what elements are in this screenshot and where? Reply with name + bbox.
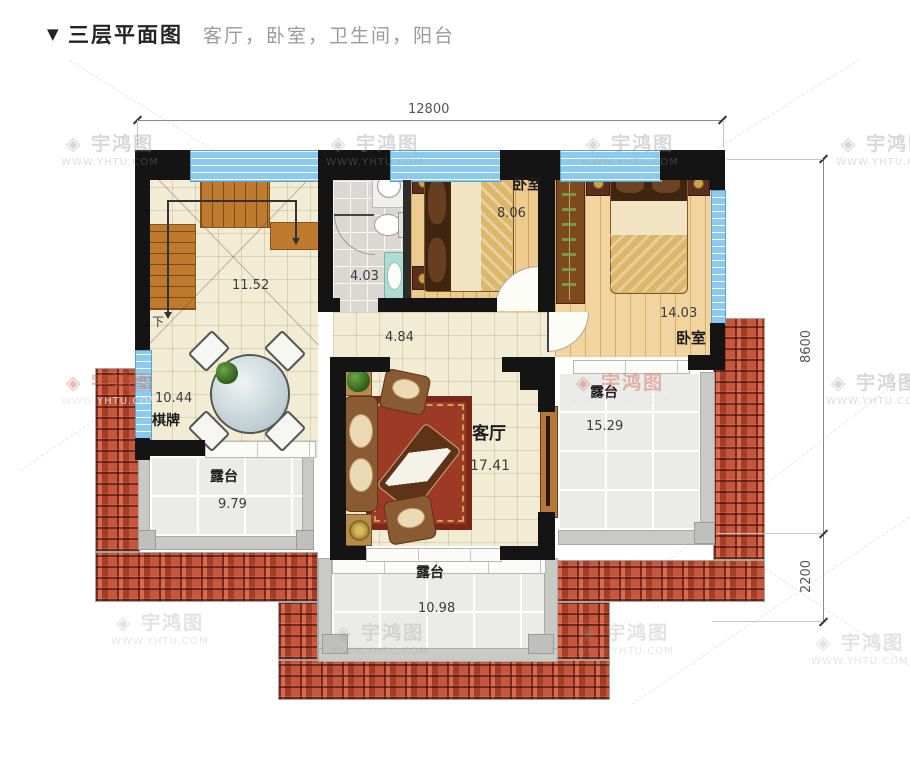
watermark-url: WWW.YHTU.COM [75,636,245,648]
terrace-right-area: 15.29 [586,420,623,433]
roof-bottom-left [95,552,318,602]
wall [710,323,725,357]
wall [330,546,366,560]
stair-walkline [167,200,169,312]
hallway-area: 4.84 [385,331,414,344]
window [560,150,662,182]
section-marker-icon: ▼ [47,25,59,43]
terrace-bottom-name: 露台 [416,566,444,580]
dimension-right-upper-value: 8600 [800,330,813,363]
plant-icon [216,362,238,384]
terrace-right-parapet [558,530,715,545]
living-terrace-door-sill [366,548,502,562]
terrace-right-floor [558,372,700,530]
terrace-post [322,634,348,654]
wall [318,150,390,180]
window [190,150,320,182]
wall [403,180,411,300]
wall [403,298,497,312]
window [390,150,502,182]
bed-pillow [428,238,446,282]
terrace-post [296,530,314,550]
bathroom-door-leaf [334,214,374,216]
dimension-right-lower-value: 2200 [800,560,813,593]
terrace-left-area: 9.79 [218,498,247,511]
yhtu-logo-icon: ◈ [66,133,83,155]
bedroom2-name: 卧室 [676,331,706,346]
dimension-top-value: 12800 [408,103,449,116]
wardrobe-clothes [562,172,576,298]
extension-line [712,621,823,622]
window [711,190,726,325]
yhtu-logo-icon: ◈ [116,612,133,634]
page-title: 三层平面图 [68,19,183,49]
extension-line [717,533,823,534]
terrace-right-name: 露台 [590,386,618,400]
floorplan-canvas: ▼ 三层平面图 客厅，卧室，卫生间，阳台 [0,0,910,769]
extension-line [137,120,138,148]
watermark-brand: 宇鸿图 [841,632,904,654]
bed-pillow [428,180,446,224]
watermark: ◈ 宇鸿图 WWW.YHTU.COM [75,612,245,648]
watermark: ◈ 宇鸿图 WWW.YHTU.COM [800,133,910,169]
decor-compass-icon [349,520,370,541]
bathtub-basin [387,262,402,290]
wall [520,357,538,390]
wall [538,180,555,312]
window [135,350,152,440]
wall [318,180,333,312]
watermark-brand: 宇鸿图 [141,612,204,634]
stair-walkline [295,200,297,238]
stairs-down-arrow-icon [292,238,300,245]
watermark: ◈ 宇鸿图 WWW.YHTU.COM [790,372,910,408]
dimension-line-right [823,159,824,622]
wall [500,546,555,560]
wall [710,150,725,190]
watermark-url: WWW.YHTU.COM [775,656,910,668]
yhtu-logo-icon: ◈ [66,372,83,394]
dimension-line-top [137,120,723,121]
stairs-down-label: 下 [152,316,164,328]
roof-terrace-left [278,602,318,660]
living-room-area: 17.41 [470,459,510,473]
roof-left [95,368,140,552]
terrace-left-floor [150,456,302,536]
dimension-tick [819,617,828,626]
bed-blanket-fold [480,172,512,290]
page-subtitle: 客厅，卧室，卫生间，阳台 [203,21,455,48]
sofa-cushion [349,414,373,448]
terrace-right-door-sill [573,360,690,374]
bedroom2-door-leaf [547,312,549,352]
terrace-post [528,634,554,654]
bedroom1-area: 8.06 [497,207,526,220]
stairs-down-arrow-icon [164,312,172,319]
terrace-left-name: 露台 [210,470,238,484]
terrace-left-door-sill [205,441,316,458]
plant-icon [347,369,370,392]
terrace-right-parapet [700,372,715,545]
terrace-bottom-area: 10.98 [418,602,455,615]
yhtu-logo-icon: ◈ [831,372,848,394]
bedroom1-name: 卧室 [512,177,542,192]
roof-terrace-right [555,602,610,660]
bed-blanket-fold [610,234,686,292]
chess-room-area: 10.44 [155,392,192,405]
chess-room-name: 棋牌 [152,414,180,428]
bedroom2-area: 14.03 [660,307,697,320]
yhtu-logo-icon: ◈ [816,632,833,654]
terrace-bottom-parapet [318,648,558,662]
terrace-post [694,522,715,544]
terrace-left-parapet [138,536,314,550]
extension-line [727,159,823,160]
watermark-brand: 宇鸿图 [606,622,669,644]
wall [135,150,150,350]
bathroom-area: 4.03 [350,270,379,283]
extension-line [723,120,724,148]
stair-walkline [167,200,297,202]
stair-flight-left [149,224,196,310]
roof-bottom-right [555,560,765,602]
wall [688,355,725,370]
stairs-area: 11.52 [232,279,269,292]
living-room-name: 客厅 [472,426,506,443]
watermark-brand: 宇鸿图 [866,133,910,155]
watermark: ◈ 宇鸿图 WWW.YHTU.COM [775,632,910,668]
wall [538,357,555,412]
wall [318,298,340,312]
sofa-cushion [349,458,373,492]
terrace-post [138,530,156,550]
wall [135,438,150,460]
watermark-url: WWW.YHTU.COM [790,396,910,408]
wall [330,357,346,560]
tv-screen [546,416,550,506]
yhtu-logo-icon: ◈ [841,133,858,155]
roof-bottom [278,660,610,700]
